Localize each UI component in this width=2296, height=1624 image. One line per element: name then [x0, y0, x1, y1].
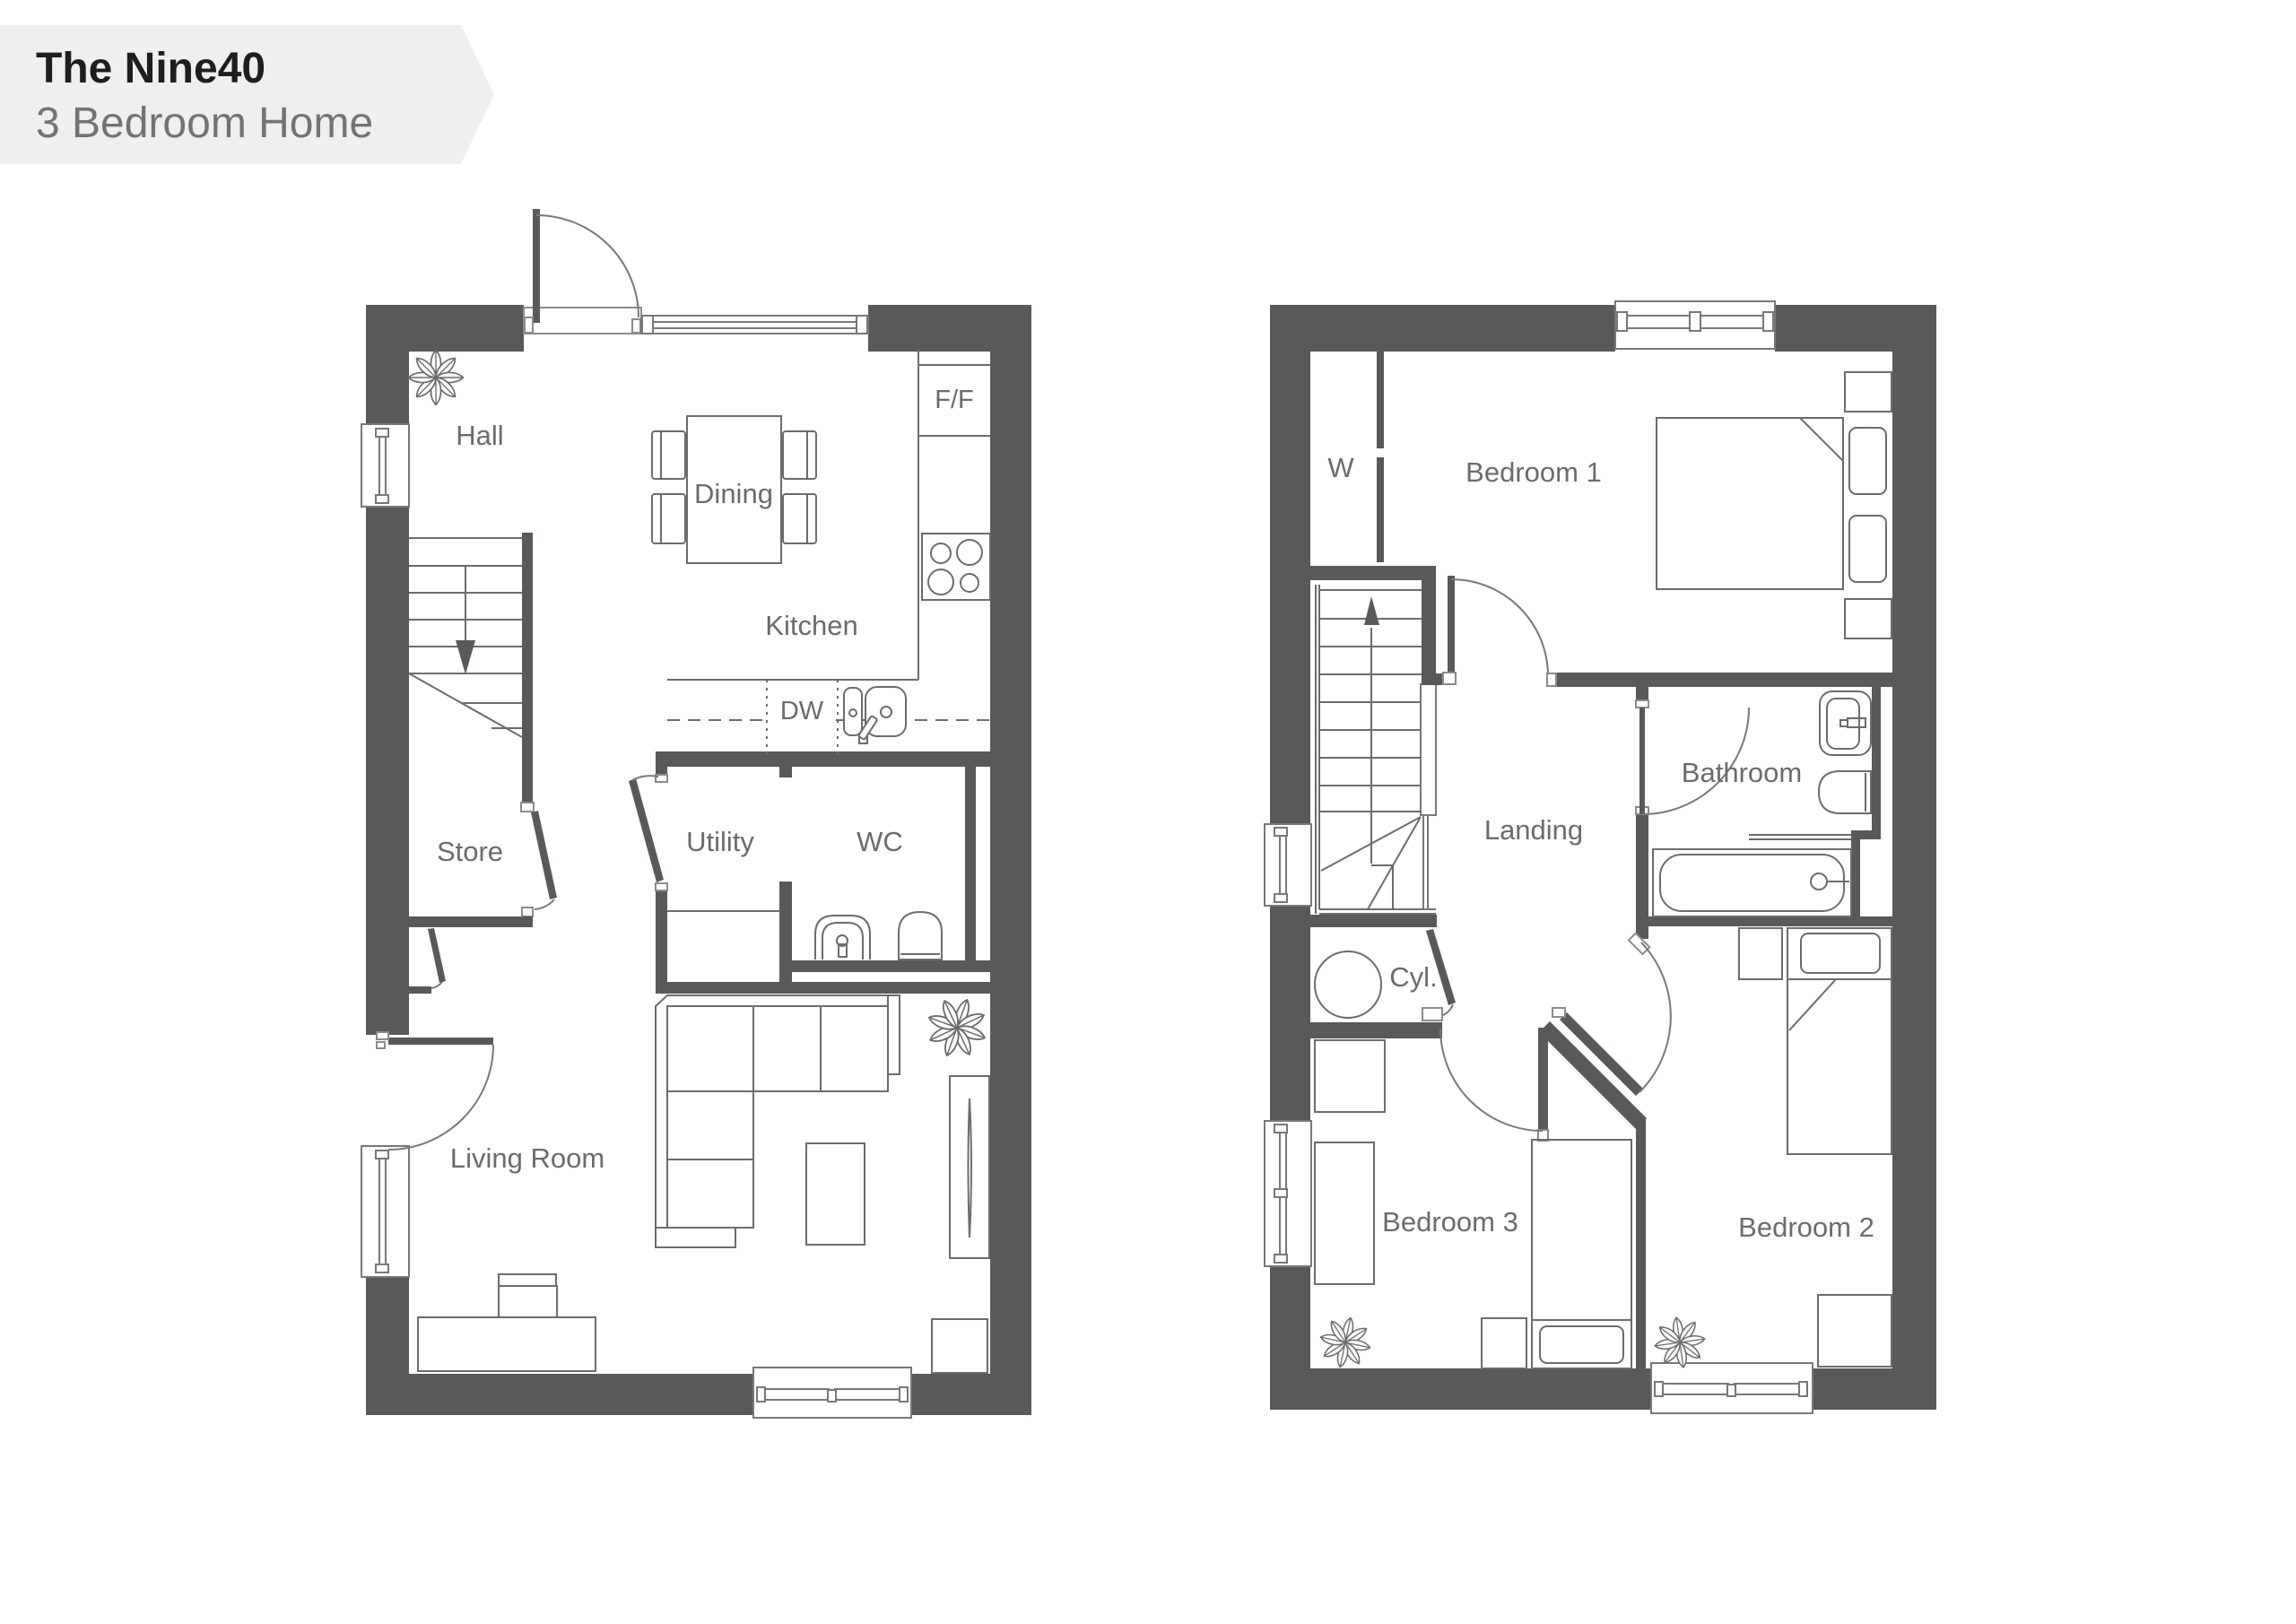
svg-text:Bedroom 3: Bedroom 3 [1382, 1206, 1518, 1238]
svg-text:Hall: Hall [456, 420, 503, 451]
svg-text:3 Bedroom Home: 3 Bedroom Home [36, 100, 373, 147]
svg-text:WC: WC [857, 826, 903, 857]
svg-text:Cyl.: Cyl. [1389, 961, 1437, 993]
svg-text:Kitchen: Kitchen [765, 610, 857, 641]
svg-text:W: W [1327, 452, 1354, 483]
svg-text:Bedroom 2: Bedroom 2 [1738, 1211, 1874, 1243]
svg-text:Landing: Landing [1484, 814, 1583, 846]
svg-text:Bedroom 1: Bedroom 1 [1465, 456, 1602, 488]
svg-text:Dining: Dining [694, 478, 773, 509]
svg-text:Utility: Utility [686, 826, 754, 857]
svg-text:F/F: F/F [935, 386, 974, 414]
svg-text:Living Room: Living Room [450, 1142, 604, 1174]
svg-text:Bathroom: Bathroom [1682, 757, 1802, 788]
svg-text:DW: DW [780, 697, 824, 725]
svg-text:The Nine40: The Nine40 [36, 45, 265, 92]
svg-text:Store: Store [437, 836, 503, 867]
